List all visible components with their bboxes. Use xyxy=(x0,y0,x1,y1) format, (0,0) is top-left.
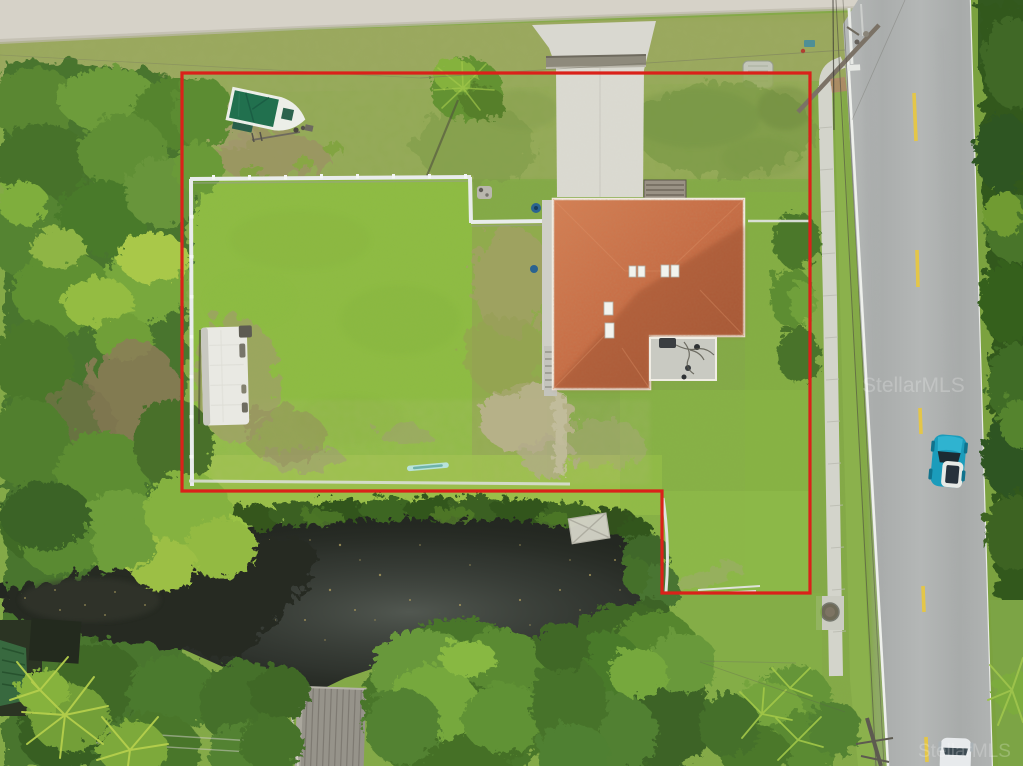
svg-text:StellarMLS: StellarMLS xyxy=(862,374,965,397)
svg-text:StellarMLS: StellarMLS xyxy=(918,741,1011,762)
